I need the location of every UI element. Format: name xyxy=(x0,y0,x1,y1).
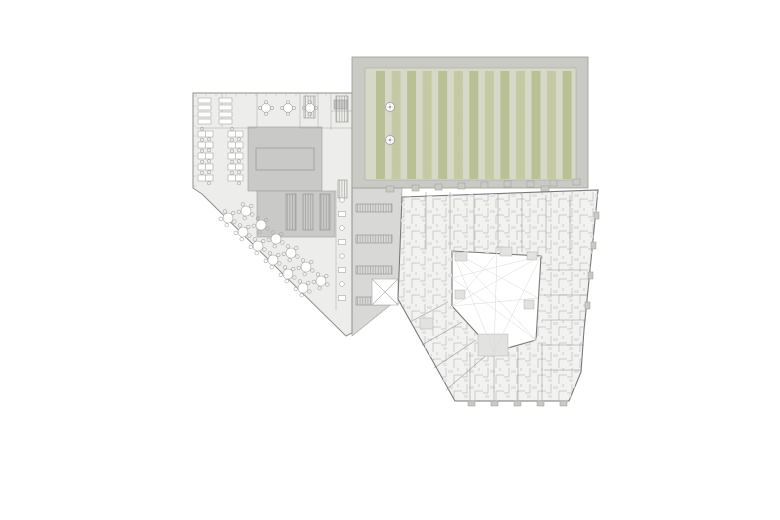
floor-plan xyxy=(0,0,780,520)
green-roof xyxy=(352,57,588,192)
building-core xyxy=(248,127,322,191)
plaza-court xyxy=(352,188,402,336)
floorplan-canvas xyxy=(0,0,780,520)
apartment-building xyxy=(398,179,599,406)
